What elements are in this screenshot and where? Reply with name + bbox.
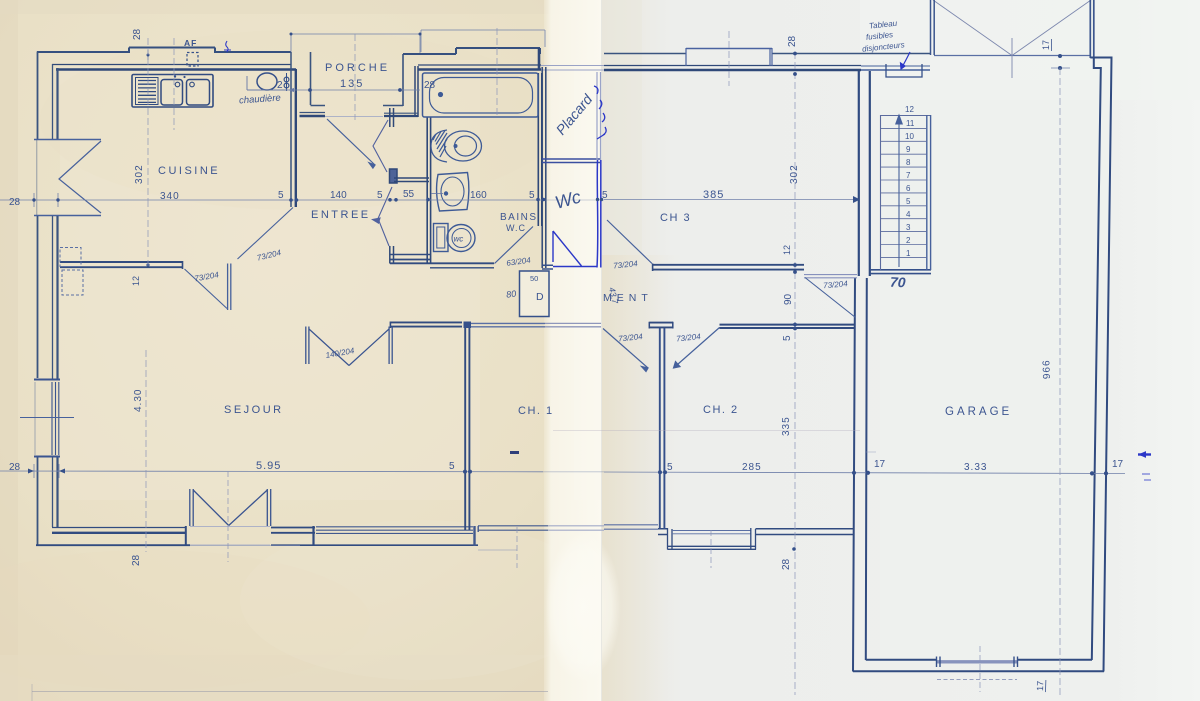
svg-text:12: 12: [131, 276, 141, 286]
svg-text:SEJOUR: SEJOUR: [224, 404, 284, 416]
svg-text:5: 5: [278, 190, 284, 201]
svg-text:28: 28: [131, 554, 142, 566]
svg-text:CH. 1: CH. 1: [518, 405, 554, 417]
svg-text:PORCHE: PORCHE: [325, 62, 390, 74]
svg-text:28: 28: [787, 35, 798, 47]
svg-text:9: 9: [906, 145, 911, 154]
svg-text:1: 1: [906, 249, 911, 258]
svg-text:50: 50: [530, 274, 538, 283]
svg-text:135: 135: [340, 78, 364, 90]
svg-text:5: 5: [906, 197, 911, 206]
svg-text:17: 17: [1041, 40, 1051, 50]
svg-text:3.33: 3.33: [964, 462, 987, 473]
svg-text:4: 4: [906, 210, 911, 219]
svg-text:966: 966: [1041, 359, 1053, 379]
svg-text:CH 3: CH 3: [660, 212, 691, 224]
svg-text:4.30: 4.30: [133, 389, 144, 412]
svg-text:12: 12: [905, 105, 914, 114]
svg-text:11: 11: [906, 119, 915, 128]
svg-text:2: 2: [906, 236, 911, 245]
svg-text:8: 8: [906, 158, 911, 167]
svg-text:2: 2: [277, 80, 283, 91]
svg-text:80: 80: [506, 288, 517, 299]
svg-text:28: 28: [424, 80, 436, 91]
svg-text:335: 335: [781, 416, 792, 436]
svg-text:D: D: [536, 291, 548, 303]
svg-text:5: 5: [449, 461, 455, 472]
svg-text:5: 5: [377, 190, 383, 201]
svg-text:5.95: 5.95: [256, 460, 281, 472]
svg-text:55: 55: [403, 189, 415, 200]
svg-text:28: 28: [9, 197, 21, 208]
svg-text:302: 302: [789, 164, 800, 184]
svg-text:12: 12: [782, 245, 792, 255]
svg-text:5: 5: [602, 190, 608, 201]
svg-text:140: 140: [330, 190, 347, 201]
svg-text:3: 3: [906, 223, 911, 232]
svg-text:160: 160: [470, 190, 487, 201]
svg-text:10: 10: [905, 132, 914, 141]
svg-text:GARAGE: GARAGE: [945, 406, 1012, 418]
svg-text:70: 70: [890, 274, 907, 291]
svg-text:17: 17: [874, 459, 886, 470]
svg-text:BAINS: BAINS: [500, 212, 538, 223]
svg-text:17: 17: [1112, 459, 1124, 470]
svg-text:17: 17: [1035, 681, 1045, 691]
svg-text:5: 5: [529, 190, 535, 201]
svg-text:90: 90: [783, 293, 794, 305]
svg-text:385: 385: [703, 189, 724, 201]
svg-text:6: 6: [906, 184, 911, 193]
svg-text:7: 7: [906, 171, 911, 180]
svg-text:CUISINE: CUISINE: [158, 165, 220, 177]
svg-text:302: 302: [134, 164, 145, 184]
svg-text:28: 28: [781, 558, 792, 570]
svg-text:W.C: W.C: [506, 223, 526, 233]
svg-text:ENTREE: ENTREE: [311, 209, 371, 221]
svg-text:5: 5: [782, 335, 793, 341]
svg-text:28: 28: [132, 28, 143, 40]
svg-text:28: 28: [9, 462, 21, 473]
svg-text:AF: AF: [184, 38, 197, 48]
svg-text:CH. 2: CH. 2: [703, 404, 739, 416]
svg-text:285: 285: [742, 462, 762, 473]
svg-text:340: 340: [160, 191, 180, 202]
svg-text:5: 5: [667, 462, 673, 473]
svg-text:wc: wc: [454, 235, 464, 244]
